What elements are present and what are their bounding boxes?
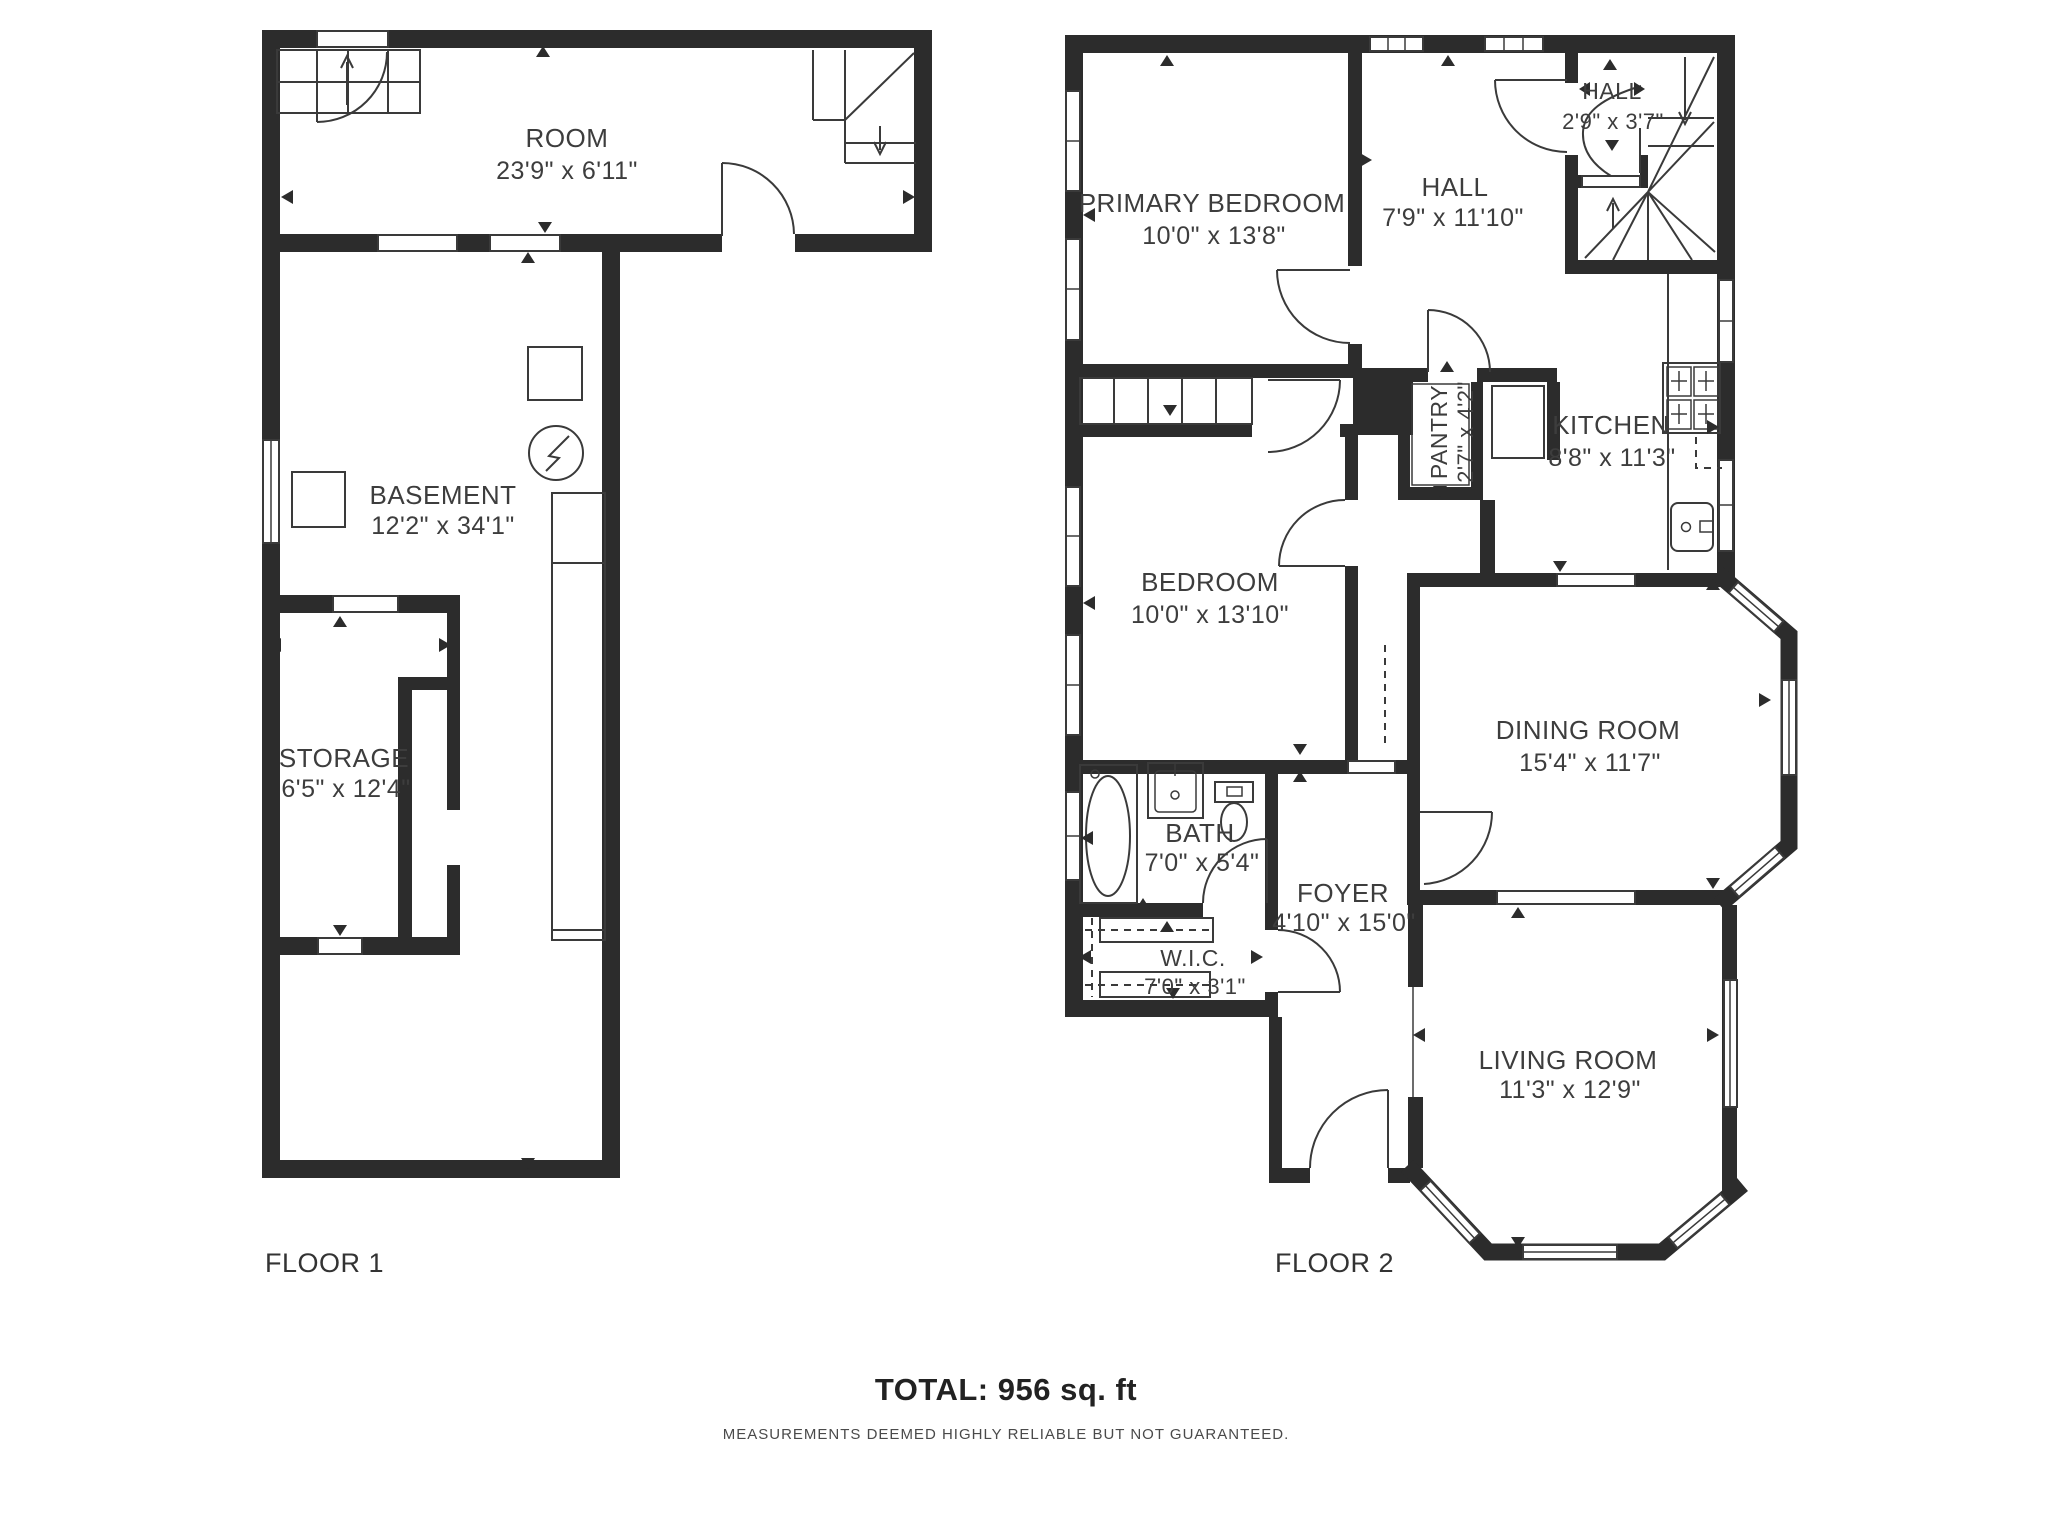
basement-label: BASEMENT xyxy=(369,480,516,510)
kitchen-dims: 8'8" x 11'3" xyxy=(1548,444,1675,472)
kitchen-label: KITCHEN xyxy=(1552,410,1670,440)
hall-dims: 7'9" x 11'10" xyxy=(1382,204,1524,232)
total-area-text: TOTAL: 956 sq. ft xyxy=(875,1372,1137,1407)
storage-dims: 6'5" x 12'4" xyxy=(281,775,410,803)
bedroom-stairs xyxy=(1080,378,1252,424)
floor1-label: FLOOR 1 xyxy=(265,1248,384,1278)
floor1-plan: ROOM 23'9" x 6'11" BASEMENT 12'2" x 34'1… xyxy=(262,30,932,1278)
basement-dims: 12'2" x 34'1" xyxy=(371,512,515,540)
basement-door xyxy=(722,163,794,236)
floorplan-canvas: ROOM 23'9" x 6'11" BASEMENT 12'2" x 34'1… xyxy=(0,0,2048,1536)
kitchen-fixtures xyxy=(1663,274,1722,570)
floor2-plan: PRIMARY BEDROOM 10'0" x 13'8" HALL 7'9" … xyxy=(1065,35,1796,1278)
primary-bedroom-label: PRIMARY BEDROOM xyxy=(1079,188,1346,218)
wic-label: W.I.C. xyxy=(1160,945,1226,971)
basement-stairs-top-left xyxy=(277,50,420,122)
room-dims: 23'9" x 6'11" xyxy=(496,157,638,185)
floorplan-page: ROOM 23'9" x 6'11" BASEMENT 12'2" x 34'1… xyxy=(0,0,2048,1536)
pantry-label: PANTRY xyxy=(1426,385,1452,479)
hall-small-label: HALL xyxy=(1582,78,1642,104)
floor2-room-labels: PRIMARY BEDROOM 10'0" x 13'8" HALL 7'9" … xyxy=(1079,78,1681,1104)
bath-label: BATH xyxy=(1165,818,1234,848)
wic-dims: 7'0" x 3'1" xyxy=(1144,974,1246,999)
living-room-label: LIVING ROOM xyxy=(1479,1045,1658,1075)
bedroom-dims: 10'0" x 13'10" xyxy=(1131,601,1289,629)
stairs-top-right xyxy=(813,50,916,163)
foyer-label: FOYER xyxy=(1297,878,1389,908)
living-room-dims: 11'3" x 12'9" xyxy=(1499,1076,1641,1104)
dining-room-dims: 15'4" x 11'7" xyxy=(1519,749,1661,777)
bath-sink-icon xyxy=(1148,763,1203,818)
hall-label: HALL xyxy=(1421,172,1488,202)
foyer-dims: 4'10" x 15'0" xyxy=(1272,909,1416,937)
footer: TOTAL: 956 sq. ft MEASUREMENTS DEEMED HI… xyxy=(723,1372,1290,1443)
bath-dims: 7'0" x 5'4" xyxy=(1145,849,1260,877)
floor2-label: FLOOR 2 xyxy=(1275,1248,1394,1278)
storage-label: STORAGE xyxy=(279,743,409,773)
disclaimer-text: MEASUREMENTS DEEMED HIGHLY RELIABLE BUT … xyxy=(723,1426,1290,1443)
kitchen-sink-icon xyxy=(1671,503,1713,551)
primary-bedroom-dims: 10'0" x 13'8" xyxy=(1142,222,1286,250)
electrical-panel-icon xyxy=(529,426,583,480)
basement-chase xyxy=(552,493,605,940)
furnace-icon xyxy=(528,347,582,400)
pantry-dims: 2'7" x 4'2" xyxy=(1453,381,1478,483)
room-label: ROOM xyxy=(526,123,609,153)
stove-icon xyxy=(1663,363,1720,433)
dining-room-label: DINING ROOM xyxy=(1496,715,1681,745)
bedroom-label: BEDROOM xyxy=(1141,567,1279,597)
fridge-icon xyxy=(1492,386,1544,458)
hall-small-dims: 2'9" x 3'7" xyxy=(1562,109,1664,134)
basement-fixture-box-icon xyxy=(292,472,345,527)
